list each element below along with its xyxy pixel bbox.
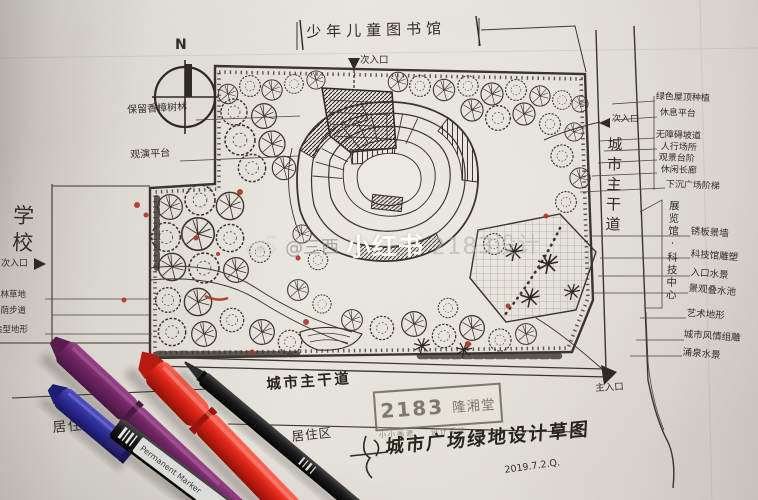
watermark-studio: 2183设计: [431, 225, 542, 261]
weibo-watermark: @三西 小红书 2183设计: [244, 224, 542, 265]
watermark-handle: @三西: [285, 233, 339, 260]
photo-canvas: 少年儿童图书馆 次入口 N 保留香樟树林 观演平台 学校 次入口 疏林草地 林荫…: [0, 0, 758, 500]
watermark-eye-icon: [244, 233, 278, 262]
watermark-brand: 小红书: [346, 226, 425, 263]
